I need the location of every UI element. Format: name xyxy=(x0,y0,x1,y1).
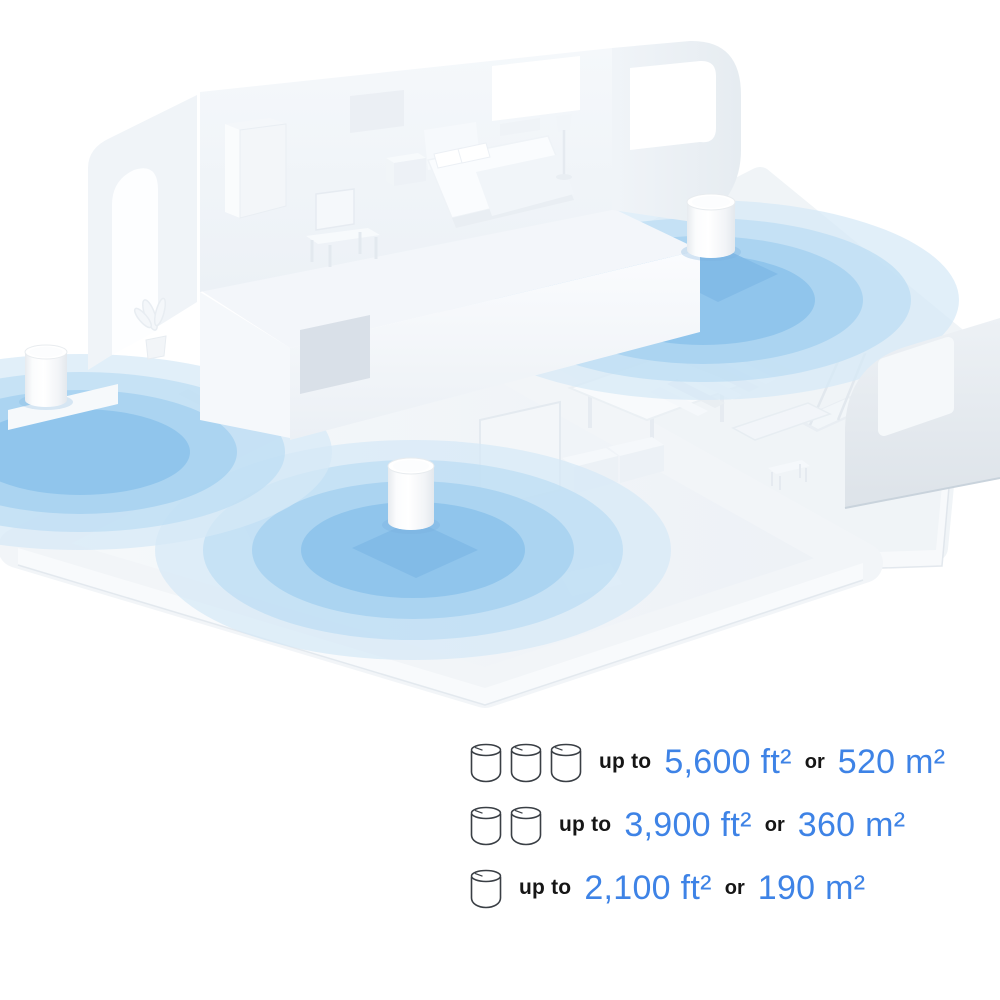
deco-unit-living-room xyxy=(382,458,440,534)
nightstand xyxy=(386,153,426,186)
coverage-sqm: 360 m² xyxy=(798,806,906,845)
house-illustration xyxy=(0,0,1000,720)
coverage-row-3-units: up to 5,600 ft² or 520 m² xyxy=(468,740,945,784)
wall-tv-panel xyxy=(350,90,404,133)
coverage-sqft: 3,900 ft² xyxy=(624,806,751,845)
deco-unit-left xyxy=(19,345,73,410)
unit-icons-2 xyxy=(468,803,544,847)
coverage-row-1-unit: up to 2,100 ft² or 190 m² xyxy=(468,866,945,910)
facade-window xyxy=(884,343,948,430)
up-to-label: up to xyxy=(599,750,651,774)
back-window xyxy=(492,56,580,121)
deco-unit-icon xyxy=(468,866,504,910)
deco-unit-icon xyxy=(468,740,504,784)
coverage-legend: up to 5,600 ft² or 520 m² up to 3,900 ft… xyxy=(468,740,945,910)
unit-icons-3 xyxy=(468,740,584,784)
page: up to 5,600 ft² or 520 m² up to 3,900 ft… xyxy=(0,0,1000,1000)
deco-unit-icon xyxy=(508,803,544,847)
or-label: or xyxy=(805,751,825,774)
or-label: or xyxy=(725,877,745,900)
up-to-label: up to xyxy=(559,813,611,837)
up-to-label: up to xyxy=(519,876,571,900)
or-label: or xyxy=(765,814,785,837)
wardrobe xyxy=(225,118,286,218)
coverage-sqft: 2,100 ft² xyxy=(584,869,711,908)
coverage-row-2-units: up to 3,900 ft² or 360 m² xyxy=(468,803,945,847)
deco-unit-icon xyxy=(508,740,544,784)
unit-icons-1 xyxy=(468,866,504,910)
coverage-sqft: 5,600 ft² xyxy=(664,743,791,782)
upper-window xyxy=(630,61,716,150)
coverage-sqm: 520 m² xyxy=(838,743,946,782)
deco-unit-icon xyxy=(548,740,584,784)
deco-unit-icon xyxy=(468,803,504,847)
deco-unit-upper-floor xyxy=(681,194,741,261)
coverage-sqm: 190 m² xyxy=(758,869,866,908)
